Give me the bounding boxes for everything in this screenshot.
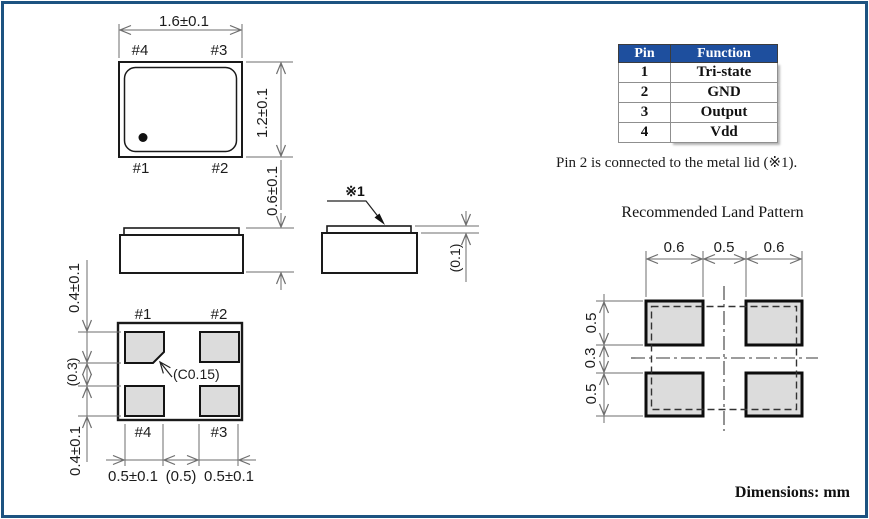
land-left-dim-bottom: 0.5: [583, 384, 600, 405]
bottom-view-left-dim-bottom: 0.4±0.1: [67, 426, 84, 476]
bottom-view-pin3-label: #3: [211, 424, 228, 441]
pin-function: GND: [671, 83, 778, 103]
land-top-dim-mid: 0.5: [714, 239, 735, 256]
land-pad-top-left: [646, 301, 703, 345]
land-top-dim-left: 0.6: [664, 239, 685, 256]
bottom-view-pin4-label: #4: [135, 424, 152, 441]
land-pad-top-right: [746, 301, 802, 345]
top-view-body: [119, 62, 242, 157]
metal-lid-leader-line: [327, 201, 380, 219]
bottom-pad-4: [125, 386, 164, 416]
bottom-pad-3: [200, 386, 239, 416]
table-header-row: Pin Function: [619, 45, 778, 63]
bottom-view-bottom-dim-right: 0.5±0.1: [204, 468, 254, 485]
pin1-index-dot: [139, 133, 148, 142]
metal-lid-leader-arrow: [375, 214, 386, 226]
pin-function: Tri-state: [671, 63, 778, 83]
pin-number: 2: [619, 83, 671, 103]
bottom-view-pin2-label: #2: [211, 306, 228, 323]
bottom-view-pin1-label: #1: [135, 306, 152, 323]
bottom-view-bottom-dim-mid: (0.5): [166, 468, 197, 485]
function-column-header: Function: [671, 45, 778, 63]
pin-column-header: Pin: [619, 45, 671, 63]
pin-function: Output: [671, 103, 778, 123]
pin-function-table: Pin Function 1 Tri-state 2 GND 3 Output …: [618, 44, 778, 143]
bottom-view-bottom-dim-left: 0.5±0.1: [108, 468, 158, 485]
top-view-width-dim: 1.6±0.1: [159, 13, 209, 30]
chamfer-label: (C0.15): [173, 366, 220, 382]
table-row: 1 Tri-state: [619, 63, 778, 83]
bottom-view-left-dim-mid: (0.3): [64, 358, 80, 387]
land-pattern: 0.6 0.5 0.6 0.5 0.3 0.5: [582, 239, 818, 431]
table-row: 3 Output: [619, 103, 778, 123]
pin2-metal-lid-note: Pin 2 is connected to the metal lid (※1)…: [556, 153, 868, 172]
top-view-pin1-label: #1: [133, 160, 150, 177]
pin-number: 3: [619, 103, 671, 123]
top-view-pin2-label: #2: [212, 160, 229, 177]
bottom-view-left-dim-top: 0.4±0.1: [66, 263, 83, 313]
land-top-dim-right: 0.6: [764, 239, 785, 256]
pin-number: 1: [619, 63, 671, 83]
top-view-pin3-label: #3: [211, 42, 228, 59]
top-view-pin4-label: #4: [132, 42, 149, 59]
lid-view-body: [322, 233, 417, 273]
metal-lid-ref-label: ※1: [345, 183, 365, 199]
side-view: 0.6±0.1: [120, 160, 294, 290]
lid-view: ※1 (0.1): [322, 183, 479, 282]
lid-view-lid: [327, 226, 411, 233]
bottom-pad-2: [200, 332, 239, 362]
top-view: #4 #3 #1 #2 1.6±0.1 1.2±0.1: [119, 13, 293, 177]
dimensions-units-label: Dimensions: mm: [706, 484, 850, 502]
land-left-dim-mid: 0.3: [582, 348, 599, 369]
bottom-pad-1: [125, 332, 164, 363]
table-row: 2 GND: [619, 83, 778, 103]
top-view-height-dim: 1.2±0.1: [254, 88, 271, 138]
pin-function: Vdd: [671, 123, 778, 143]
land-pattern-title: Recommended Land Pattern: [570, 204, 855, 222]
lid-thickness-dim: (0.1): [447, 244, 463, 273]
pin-number: 4: [619, 123, 671, 143]
side-view-lid: [124, 228, 239, 235]
land-left-dim-top: 0.5: [583, 313, 600, 334]
side-view-height-dim: 0.6±0.1: [264, 166, 281, 216]
side-view-body: [120, 235, 243, 273]
table-row: 4 Vdd: [619, 123, 778, 143]
bottom-view: #1 #2 #4 #3 (C0.15) 0.4±0.1 (0.3) 0.4±0.…: [64, 260, 256, 485]
